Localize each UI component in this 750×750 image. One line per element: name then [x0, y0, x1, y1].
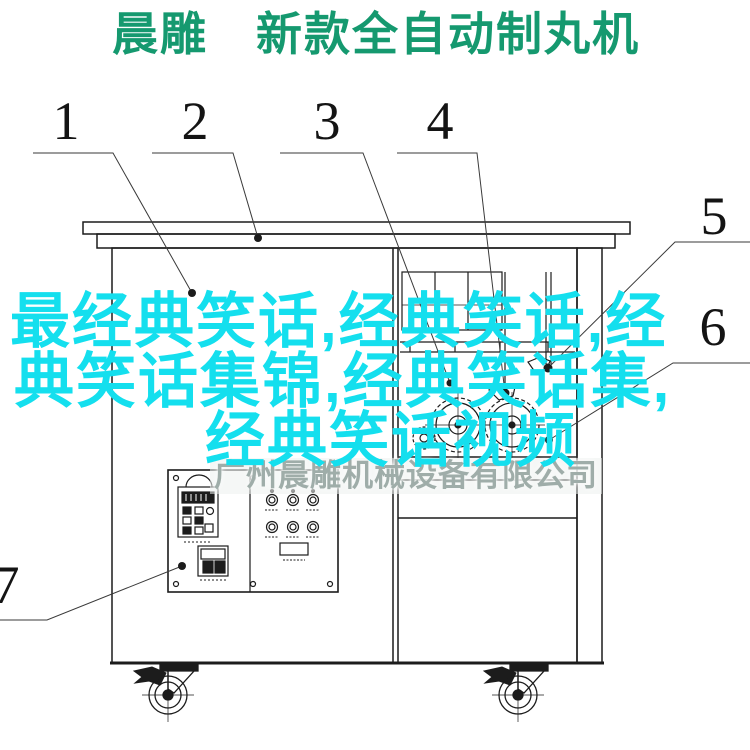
- tabletop: [83, 222, 630, 248]
- callout-number-6: 6: [693, 300, 733, 354]
- joke-watermark-line-1: 最经典笑话,经典笑话,经: [10, 292, 667, 352]
- caster-wheel-left: [134, 664, 198, 722]
- page-title: 晨雕 新款全自动制丸机: [112, 10, 652, 61]
- panel-screw: [251, 582, 256, 587]
- joke-watermark-line-2: 典笑话集锦,经典笑话集,: [14, 352, 671, 412]
- technical-diagram-page: 晨雕 新款全自动制丸机 1 2 3 4 5 6 7 广州晨雕机械设备有限公司 最…: [0, 0, 750, 750]
- callout-number-1: 1: [46, 94, 86, 148]
- panel-buttons: [265, 490, 320, 561]
- panel-screw: [174, 582, 179, 587]
- callout-number-2: 2: [175, 94, 215, 148]
- panel-screw: [328, 582, 333, 587]
- caster-wheel-right: [484, 664, 548, 722]
- breaker-switch: [198, 546, 228, 580]
- panel-screw: [174, 476, 179, 481]
- callout-number-3: 3: [307, 94, 347, 148]
- callout-number-5: 5: [694, 189, 734, 243]
- callout-number-7: 7: [0, 558, 26, 612]
- joke-watermark-line-3: 经典笑话视频: [205, 411, 577, 471]
- callout-number-4: 4: [420, 94, 460, 148]
